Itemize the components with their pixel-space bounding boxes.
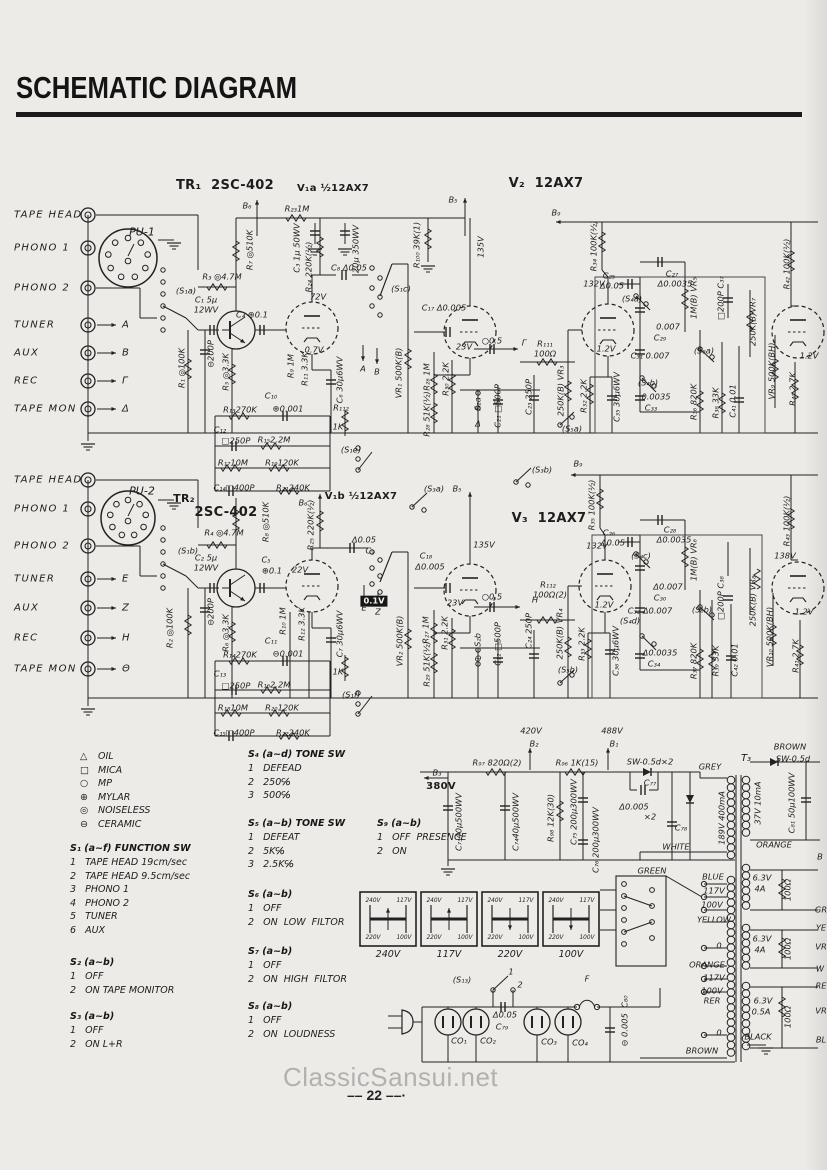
component-label: 0 [716, 942, 721, 951]
switch-list-item: 2 ON HIGH FILTOR [248, 974, 347, 985]
winding-symbol [742, 939, 750, 947]
legend-label: NOISELESS [98, 805, 150, 816]
component-label: 100Ω [784, 879, 793, 901]
contact-dot [125, 518, 131, 524]
wire [412, 493, 427, 507]
component-label: B₁ [609, 740, 618, 749]
component-label: E [361, 604, 366, 613]
contact-dot [161, 526, 165, 530]
contact-dot [622, 906, 627, 911]
switch-list-item: 2 5K℅ [248, 846, 285, 857]
component-label: C₇ 30μ6WV [336, 611, 345, 658]
component-label: VR₉ 500K(BH) [768, 342, 777, 399]
component-label: 1M(B) VR₆ [690, 539, 699, 581]
diode-symbol [686, 795, 694, 803]
selector-corner-label: 220V [426, 935, 441, 941]
component-label: W [816, 965, 824, 974]
component-label: 189V 400mA [718, 791, 727, 845]
component-label: R₄₀ 2.7K [789, 372, 798, 406]
component-label: ○0.5 [482, 593, 502, 602]
contact-dot [650, 888, 655, 893]
component-label: (S₁e) [341, 446, 361, 455]
component-label: 1K [333, 423, 344, 432]
arrowhead-icon [255, 200, 259, 205]
component-label: 12WV [194, 306, 218, 315]
contact-dot [370, 266, 374, 270]
legend-label: CERAMIC [98, 819, 141, 830]
component-label: VR [815, 943, 826, 952]
component-label: B [374, 368, 380, 377]
contact-dot [370, 582, 374, 586]
component-label: C₁₅□400P [213, 729, 254, 738]
component-label: B [817, 853, 823, 862]
contact-dot [161, 316, 165, 320]
component-label: C₃₆ 30μ6WV [612, 626, 621, 676]
winding-symbol [727, 906, 735, 914]
component-label: BROWN [774, 743, 806, 752]
contact-dot [108, 265, 114, 271]
ac-outlet-symbol [555, 1009, 581, 1035]
winding-symbol [727, 929, 735, 937]
contact-dot [370, 566, 374, 570]
component-label: R₆ ◎3.3K [222, 614, 231, 652]
contact-dot [131, 532, 137, 538]
legend-label: MICA [98, 765, 122, 776]
contact-dot [650, 936, 655, 941]
component-label: C₂₅ [603, 272, 615, 281]
tube-cathode [304, 338, 320, 342]
legend-label: MYLAR [98, 792, 130, 803]
component-label: R₁₀₀ 39K(1) [413, 222, 422, 268]
component-label: R₉₇ 820Ω(2) [473, 759, 522, 768]
component-label: 250K(B) VR₃ [557, 366, 566, 417]
component-label: 488V [601, 727, 623, 736]
winding-symbol [742, 879, 750, 887]
selector-caption: 240V [376, 949, 401, 960]
component-label: 6.3V [753, 935, 772, 944]
legend-row: ◎NOISELESS [80, 805, 150, 816]
arrowhead-icon [528, 748, 532, 753]
switch-list-title: S₃ (a~b) [70, 1011, 114, 1022]
arrowhead-icon [513, 347, 518, 351]
fuse-symbol [579, 1000, 595, 1007]
legend-label: OIL [98, 751, 114, 762]
winding-symbol [727, 814, 735, 822]
component-label: 4A [755, 885, 766, 894]
component-label: Δ0.05 [493, 1011, 517, 1020]
component-label: GREY [699, 763, 722, 772]
component-label: C₂ 5μ [195, 554, 217, 563]
component-label: C₂₁ □500P [494, 384, 503, 428]
switch-list-item: 2 250℅ [248, 777, 290, 788]
component-label: □200P C₃₇ [717, 276, 726, 320]
wire [358, 452, 372, 470]
input-routing-tag: E [122, 574, 128, 585]
component-label: R₃₀ 2.2K [442, 362, 451, 396]
winding-symbol [742, 776, 750, 784]
input-routing-tag: Γ [122, 376, 128, 387]
contact-dot [356, 457, 360, 461]
input-jack-label: TAPE MON [14, 664, 77, 675]
selector-corner-label: 100V [396, 935, 411, 941]
contact-dot [143, 512, 149, 518]
component-label: 420V [520, 727, 542, 736]
component-label: 6.3V [754, 997, 773, 1006]
component-label: R₈ ◎510K [262, 502, 271, 542]
switch-list-title: S₅ (a~b) TONE SW [248, 818, 345, 829]
component-label: SW-0.5d×2 [627, 758, 674, 767]
component-label: 23V [456, 343, 472, 352]
contact-dot [161, 574, 165, 578]
contact-dot [622, 882, 627, 887]
component-label: 250K(B) VR₄ [556, 609, 565, 660]
arrowhead-icon [111, 667, 116, 671]
component-label: 100Ω [784, 938, 793, 960]
input-jack-label: TAPE HEAD [14, 210, 83, 221]
contact-dot [526, 483, 530, 487]
component-label: YELLOW [697, 916, 731, 925]
component-label: YE [816, 924, 826, 933]
selector-corner-label: 100V [457, 935, 472, 941]
ac-outlet-symbol [463, 1009, 489, 1035]
component-label: VR [815, 1007, 826, 1016]
component-label: C₈ Δ0.05 [331, 264, 367, 273]
component-label: R₄ ◎4.7M [204, 529, 243, 538]
selector-corner-label: 117V [457, 898, 472, 904]
component-label: (S₈b) [692, 606, 712, 615]
component-label: 138V [774, 552, 796, 561]
component-label: 0.0035 [641, 393, 670, 402]
arrowhead-icon [375, 359, 379, 364]
input-routing-tag: B [122, 348, 129, 359]
component-label: 100Ω [784, 1006, 793, 1028]
transistor-collector [230, 575, 245, 585]
component-label: 37V 10mA [754, 781, 763, 824]
component-label: 1.2V [595, 601, 614, 610]
switch-list-item: 3 2.5K℅ [248, 859, 294, 870]
component-label: C₁₄□400P [213, 484, 254, 493]
switch-list-item: 6 AUX [70, 925, 105, 936]
component-label: C₇₃40μ500WV [455, 793, 464, 851]
winding-symbol [742, 924, 750, 932]
component-label: (S₅b) [558, 666, 578, 675]
switch-list-item: 2 ON LOW FILTOR [248, 917, 344, 928]
component-label: 100V [701, 987, 723, 996]
component-label: R₂₆ 1M [423, 363, 432, 391]
component-label: 2SC-402 [195, 506, 258, 520]
arrowhead-icon [571, 473, 576, 477]
component-label: 1.2V [800, 352, 819, 361]
switch-list-item: 2 TAPE HEAD 9.5cm/sec [70, 871, 190, 882]
selector-corner-label: 117V [579, 898, 594, 904]
switch-list-title: S₉ (a~b) [377, 818, 421, 829]
component-label: (S₄a) [622, 295, 642, 304]
selector-corner-label: 220V [548, 935, 563, 941]
arrowhead-icon [240, 597, 245, 601]
input-routing-tag: Θ [122, 664, 130, 675]
component-label: 22V [292, 566, 308, 575]
selector-caption: 117V [437, 949, 462, 960]
winding-symbol [742, 806, 750, 814]
component-label: C₇₄40μ500WV [512, 793, 521, 851]
selector-caption: 220V [498, 949, 523, 960]
component-label: 135V [473, 541, 495, 550]
input-jack-label: AUX [14, 348, 39, 359]
relay-switch-box [616, 876, 666, 966]
winding-symbol [742, 902, 750, 910]
legend-symbol-icon: ⊖ [80, 819, 98, 830]
component-label: (S₁c) [391, 285, 411, 294]
arrowhead-icon [468, 492, 472, 497]
component-label: C₂₉ [654, 334, 666, 343]
component-label: R₃ ◎4.7M [202, 273, 241, 282]
winding-symbol [727, 799, 735, 807]
diode-symbol [643, 768, 651, 776]
ac-plug-icon [402, 1010, 413, 1034]
input-jack-label: REC [14, 633, 38, 644]
component-label: R₃₈ 33K [712, 387, 721, 418]
input-jack-label: PHONO 2 [14, 541, 70, 552]
component-label: Γ [522, 339, 527, 348]
winding-symbol [727, 1034, 735, 1042]
wire [380, 552, 392, 582]
component-label: R₉₆ 1K(15) [556, 759, 599, 768]
winding-symbol [727, 1019, 735, 1027]
component-label: C₁₁ [265, 637, 277, 646]
winding-symbol [742, 784, 750, 792]
component-label: (S₈a) [694, 347, 714, 356]
component-label: 4A [755, 946, 766, 955]
component-label: CO₁ [451, 1037, 467, 1046]
winding-symbol [727, 1004, 735, 1012]
winding-symbol [742, 864, 750, 872]
component-label: C₇₇ [644, 779, 656, 788]
input-routing-tag: A [122, 320, 129, 331]
input-routing-tag: Δ [122, 404, 129, 415]
switch-list-title: S₁ (a~f) FUNCTION SW [70, 843, 191, 854]
contact-dot [356, 702, 360, 706]
arrowhead-icon [556, 220, 561, 224]
selector-corner-label: 240V [548, 898, 563, 904]
component-label: 1 [508, 968, 513, 977]
winding-symbol [727, 844, 735, 852]
component-label: B₉ [551, 209, 560, 218]
component-label: C₃₂ Δ0.007 [628, 607, 673, 616]
component-label: (S₁f) [342, 691, 360, 700]
component-label: 0.5A [752, 1008, 771, 1017]
component-label: ⊖200P [207, 340, 216, 368]
page-number: –– 22 ––· [347, 1087, 406, 1103]
contact-dot [622, 918, 627, 923]
component-label: R₃₇ 820K [690, 643, 699, 679]
arrowhead-icon [447, 908, 451, 913]
switch-list-title: S₄ (a~d) TONE SW [248, 749, 345, 760]
component-label: (S₄b) [638, 379, 658, 388]
winding-symbol [727, 791, 735, 799]
component-label: R₂₅ 220K(½) [307, 500, 316, 551]
legend-symbol-icon: ◎ [80, 805, 98, 816]
component-label: R₅ ◎3.3K [222, 353, 231, 391]
component-label: ○0.5 [482, 337, 502, 346]
component-label: C₁₇ Δ0.005 [422, 304, 467, 313]
contact-dot [107, 512, 113, 518]
contact-dot [143, 265, 149, 271]
component-label: R₉ 1M [287, 354, 296, 378]
component-label: ORANGE [756, 841, 792, 850]
component-label: C₈₁ 50μ100WV [788, 773, 797, 834]
component-label: SW-0.5d [776, 755, 810, 764]
winding-symbol [727, 936, 735, 944]
component-label: C₁₈ [420, 552, 432, 561]
winding-symbol [742, 791, 750, 799]
component-label: R₄₁ 2.7K [792, 639, 801, 673]
component-label: GREEN [638, 867, 667, 876]
input-jack-label: TAPE HEAD [14, 475, 83, 486]
switch-list-item: 3 500℅ [248, 790, 290, 801]
contact-dot [161, 292, 165, 296]
schematic-page: SCHEMATIC DIAGRAM TAPE HEADPHONO 1PHONO … [0, 0, 827, 1170]
input-routing-tag: H [122, 633, 130, 644]
winding-symbol [742, 799, 750, 807]
ac-outlet-symbol [524, 1009, 550, 1035]
winding-symbol [742, 829, 750, 837]
component-label: C₂₈ [664, 526, 676, 535]
component-label: 1K [333, 668, 344, 677]
component-label: Δ [475, 420, 481, 429]
wire [186, 576, 198, 588]
legend-row: ○MP [80, 778, 112, 789]
switch-list-item: 1 DEFEAD [248, 763, 302, 774]
component-label: C₆ 30μ6WV [336, 357, 345, 404]
legend-row: □MICA [80, 765, 122, 776]
contact-dot [161, 538, 165, 542]
contact-dot [652, 642, 656, 646]
component-label: 6.3V [753, 874, 772, 883]
component-label: BLACK [744, 1033, 771, 1042]
switch-list-item: 2 ON [377, 846, 407, 857]
component-label: R₁₄270K [223, 651, 257, 660]
selector-corner-label: 240V [487, 898, 502, 904]
selector-corner-label: 220V [365, 935, 380, 941]
component-label: C₁ 5μ [195, 296, 217, 305]
contact-dot [106, 252, 112, 258]
component-label: R₃₅ 100K(½) [588, 480, 597, 531]
contact-dot [114, 501, 120, 507]
winding-symbol [727, 1049, 735, 1057]
component-label: F [585, 975, 590, 984]
component-label: 23V [447, 599, 463, 608]
arrowhead-icon [111, 379, 116, 383]
contact-dot [138, 240, 144, 246]
contact-dot [161, 550, 165, 554]
component-label: R₁₃270K [223, 406, 257, 415]
component-label: R₃₂ 2.2K [580, 379, 589, 413]
component-label: TR₂ [173, 493, 195, 505]
winding-symbol [727, 996, 735, 1004]
component-label: C₁₂ [214, 426, 226, 435]
wire [128, 244, 134, 256]
wire [666, 876, 702, 897]
switch-list-item: 4 PHONO 2 [70, 898, 129, 909]
arrowhead-icon [111, 351, 116, 355]
winding-symbol [742, 872, 750, 880]
contact-dot [422, 508, 426, 512]
legend-symbol-icon: ○ [80, 778, 98, 789]
component-label: Δ0.0035 [658, 280, 693, 289]
selector-corner-label: 220V [487, 935, 502, 941]
component-label: C₇₆ 200μ300WV [592, 807, 601, 873]
component-label: Θ [475, 655, 482, 664]
component-label: C₂₂ □500P [494, 622, 503, 666]
tube-cathode [790, 598, 806, 602]
component-label: VR₂ 500K(B) [396, 616, 405, 667]
component-label: ×2 [644, 813, 656, 822]
switch-list-title: S₆ (a~b) [248, 889, 292, 900]
component-label: T₃ [741, 754, 751, 765]
component-label: Z [375, 608, 381, 617]
component-label: TR₁ 2SC-402 [176, 179, 274, 193]
component-label: C₃₄ [648, 660, 660, 669]
component-label: S₂b [474, 633, 483, 647]
component-label: (S₄c) [631, 552, 651, 561]
winding-symbol [742, 962, 750, 970]
component-label: C₂₃ 250P [525, 379, 534, 415]
component-label: R₄₂ 100K(½) [783, 239, 792, 290]
component-label: Δ0.0035 [643, 649, 678, 658]
component-label: V₁a ½12AX7 [297, 184, 369, 195]
component-label: Δ0.0035 [657, 536, 692, 545]
arrowhead-icon [111, 636, 116, 640]
component-label: V₂ 12AX7 [509, 177, 584, 191]
winding-symbol [727, 784, 735, 792]
contact-dot [622, 942, 627, 947]
selector-corner-label: 240V [426, 898, 441, 904]
component-label: ⊕0.1 [262, 567, 282, 576]
switch-list-item: 1 OFF [248, 903, 282, 914]
component-label: R₂₁240K [276, 484, 310, 493]
component-label: □250P [222, 437, 251, 446]
component-label: C₅ [261, 556, 270, 565]
contact-dot [125, 258, 131, 264]
component-label: R₂₇ 1M [422, 616, 431, 644]
input-jack-label: TAPE MON [14, 404, 77, 415]
component-label: B₉ [573, 460, 582, 469]
arrowhead-icon [606, 748, 610, 753]
component-label: C₁₃ [214, 670, 226, 679]
tube-cathode [462, 600, 478, 604]
component-label: C₃₅ 30μ6WV [613, 372, 622, 422]
winding-symbol [727, 899, 735, 907]
component-label: (S₃b) [532, 466, 552, 475]
legend-row: ⊕MYLAR [80, 792, 130, 803]
component-label: ⊖0.001 [273, 650, 304, 659]
component-label: BROWN [686, 1047, 718, 1056]
winding-symbol [742, 932, 750, 940]
winding-symbol [742, 947, 750, 955]
input-jack-label: AUX [14, 603, 39, 614]
input-jack-label: PHONO 1 [14, 504, 70, 515]
winding-symbol [742, 997, 750, 1005]
component-label: R₁₈10M [218, 704, 248, 713]
winding-symbol [727, 981, 735, 989]
component-label: 380V [426, 782, 456, 793]
component-label: R₂₂240K [276, 729, 310, 738]
component-label: C₂₇ [666, 270, 678, 279]
contact-dot [110, 524, 116, 530]
wire [624, 896, 652, 906]
component-label: R₂₃1M [285, 205, 310, 214]
selector-corner-label: 100V [579, 935, 594, 941]
